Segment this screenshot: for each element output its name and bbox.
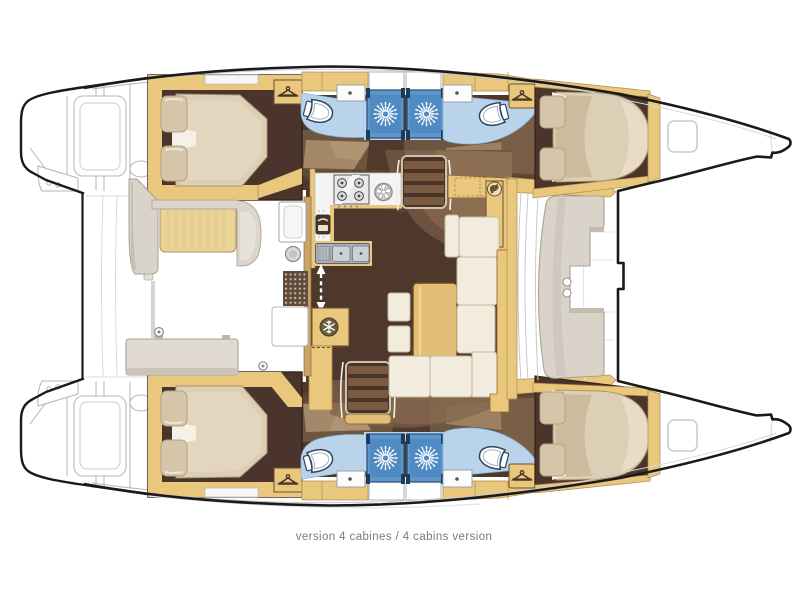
svg-text:version 4 cabines / 4 cabins v: version 4 cabines / 4 cabins version (296, 531, 493, 543)
